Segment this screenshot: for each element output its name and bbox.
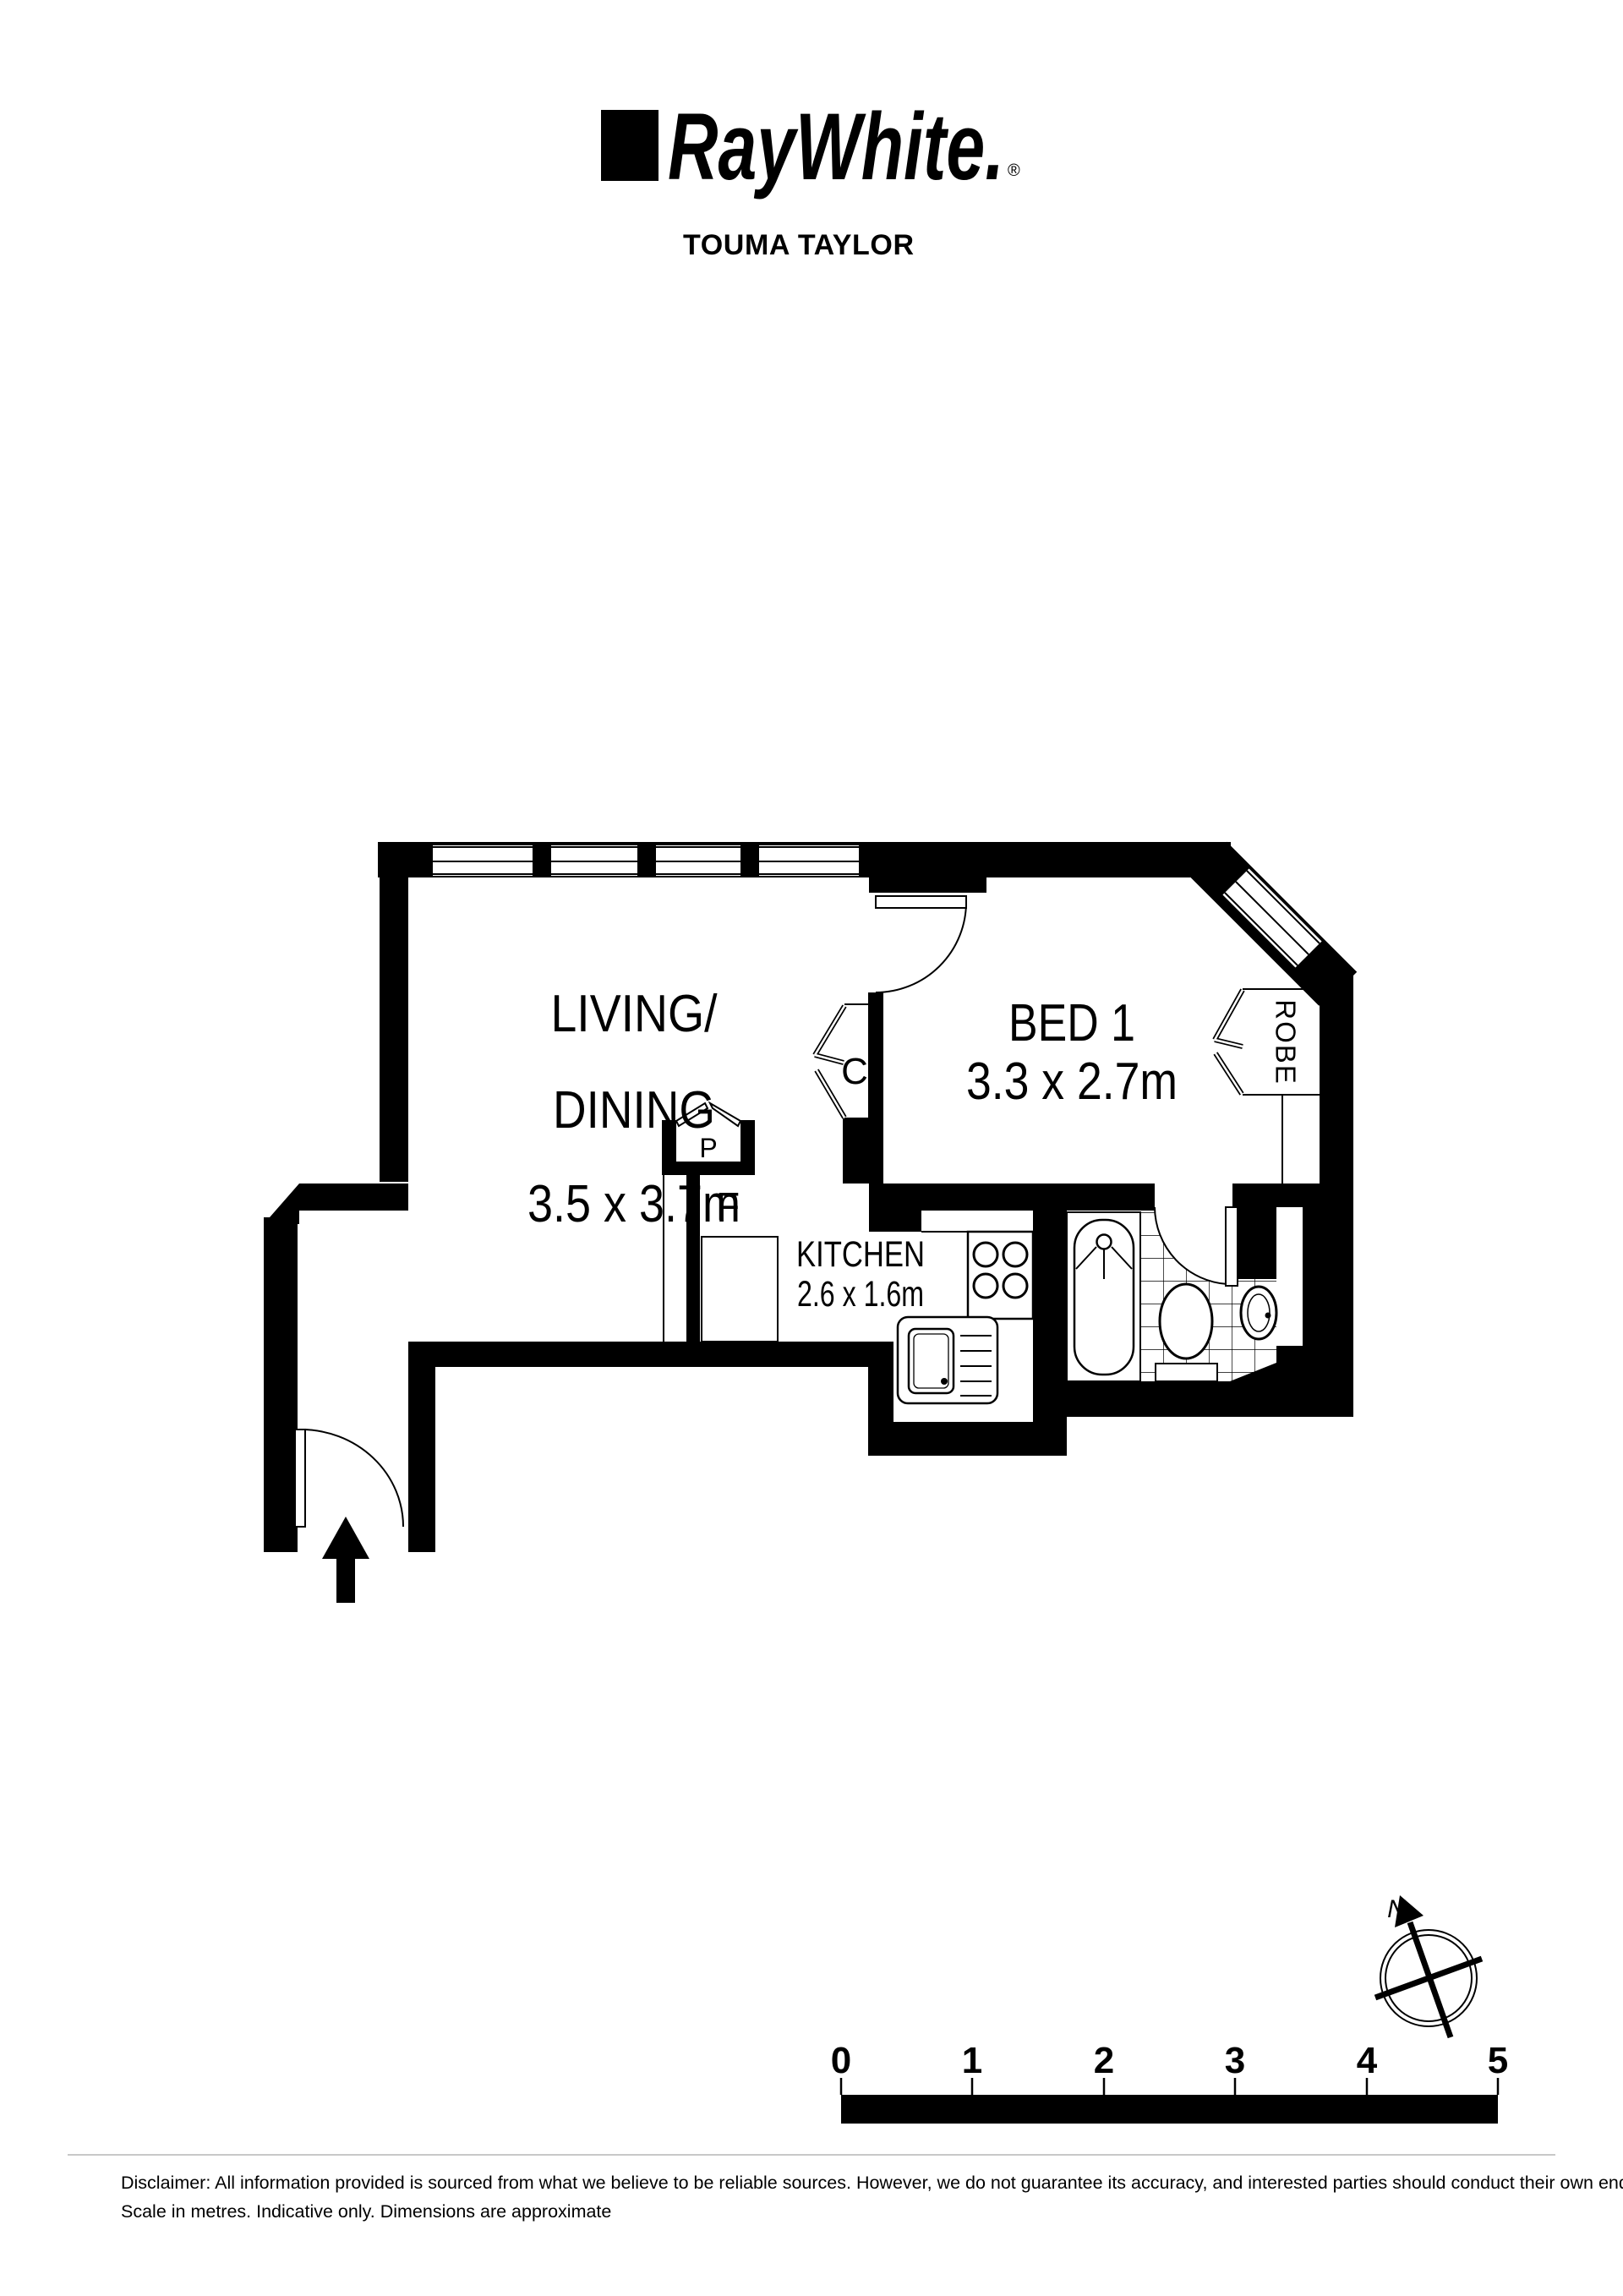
- wall-right-bath: [1303, 1211, 1353, 1381]
- wall-living-bottom: [408, 1342, 869, 1367]
- wall-entry-step: [299, 1184, 408, 1211]
- robe-label: ROBE: [1271, 999, 1302, 1085]
- wall-bed-bottom-left: [869, 1184, 1155, 1211]
- office-name: TOUMA TAYLOR: [683, 229, 920, 261]
- vanity-niche: [1276, 1207, 1303, 1346]
- scale-tick-label: 5: [1488, 2040, 1508, 2081]
- bed-door: [876, 896, 966, 992]
- footer-divider: [68, 2154, 1555, 2156]
- window: [549, 845, 639, 876]
- cooktop-icon: [921, 1232, 1033, 1319]
- wall-kitchen-top-block: [869, 1211, 921, 1232]
- living-label-line2: DINING: [553, 1081, 715, 1140]
- compass-north-label: N: [1387, 1895, 1406, 1923]
- window: [431, 845, 534, 876]
- scale-bar-rule: [841, 2095, 1498, 2124]
- wall-hall-right: [408, 1342, 435, 1552]
- kitchen-sink-icon: [898, 1317, 997, 1403]
- bath-door-leaf: [1226, 1207, 1238, 1286]
- header-logo: RayWhite. ® TOUMA TAYLOR: [601, 94, 1020, 261]
- floor-plan: LIVING/ DINING 3.5 x 3.7m BED 1 3.3 x 2.…: [264, 842, 1353, 1603]
- scale-tick-label: 3: [1225, 2040, 1245, 2081]
- footer: Disclaimer: All information provided is …: [68, 2154, 1623, 2222]
- bed-door-leaf: [876, 896, 966, 908]
- window: [757, 845, 861, 876]
- walls: [264, 842, 1353, 1552]
- scale-tick-label: 0: [831, 2040, 851, 2081]
- living-label-line1: LIVING/: [551, 985, 719, 1043]
- window: [654, 845, 742, 876]
- fridge-label: F: [716, 1184, 740, 1228]
- fridge-space: [702, 1237, 778, 1342]
- scale-tick-label: 4: [1357, 2040, 1378, 2081]
- entry-door-leaf: [295, 1430, 305, 1527]
- wall-counter-left: [868, 1342, 893, 1422]
- wall-bath-corner-block: [1232, 1211, 1276, 1279]
- scale-ticks: [841, 2078, 1498, 2095]
- compass-icon: N: [1375, 1895, 1482, 2037]
- wall-block-bed-door: [869, 877, 986, 893]
- kitchen-label: KITCHEN: [796, 1234, 925, 1275]
- closet-label: C: [841, 1051, 868, 1092]
- registered-mark: ®: [1008, 161, 1020, 180]
- disclaimer-line1: Disclaimer: All information provided is …: [121, 2173, 1623, 2193]
- kitchen-dims: 2.6 x 1.6m: [797, 1274, 924, 1315]
- wall-left-living: [380, 842, 408, 1182]
- wall-below-closet: [843, 1118, 883, 1184]
- bed1-label: BED 1: [1008, 994, 1135, 1052]
- scale-tick-label: 2: [1094, 2040, 1114, 2081]
- bathtub: [1067, 1212, 1140, 1381]
- wall-hall-left: [264, 1217, 298, 1552]
- basin-icon: [1241, 1287, 1276, 1339]
- wall-bed-bottom-right: [1232, 1184, 1353, 1211]
- wall-right-bed: [1320, 972, 1353, 1211]
- bed-door-arc: [876, 902, 966, 992]
- scale-tick-label: 1: [962, 2040, 982, 2081]
- entry-door: [295, 1430, 403, 1527]
- scale-bar: 0 1 2 3 4 5: [831, 2040, 1508, 2124]
- toilet-icon: [1156, 1284, 1217, 1381]
- pantry-label: P: [699, 1133, 717, 1163]
- entry-door-arc: [301, 1430, 403, 1527]
- bed1-dims: 3.3 x 2.7m: [966, 1052, 1178, 1111]
- disclaimer-line2: Scale in metres. Indicative only. Dimens…: [121, 2201, 611, 2222]
- brand-name: RayWhite.: [668, 94, 1004, 200]
- robe: [1215, 989, 1320, 1184]
- entry-arrow-icon: [322, 1517, 369, 1603]
- wall-bath-bottom: [1033, 1381, 1353, 1417]
- floorplan-image: RayWhite. ® TOUMA TAYLOR: [0, 0, 1623, 2296]
- floorplan-page: RayWhite. ® TOUMA TAYLOR: [0, 0, 1623, 2296]
- living-dims: 3.5 x 3.7m: [527, 1175, 740, 1233]
- raywhite-logo-square-icon: [601, 110, 658, 181]
- wall-counter-bottom: [868, 1422, 1067, 1456]
